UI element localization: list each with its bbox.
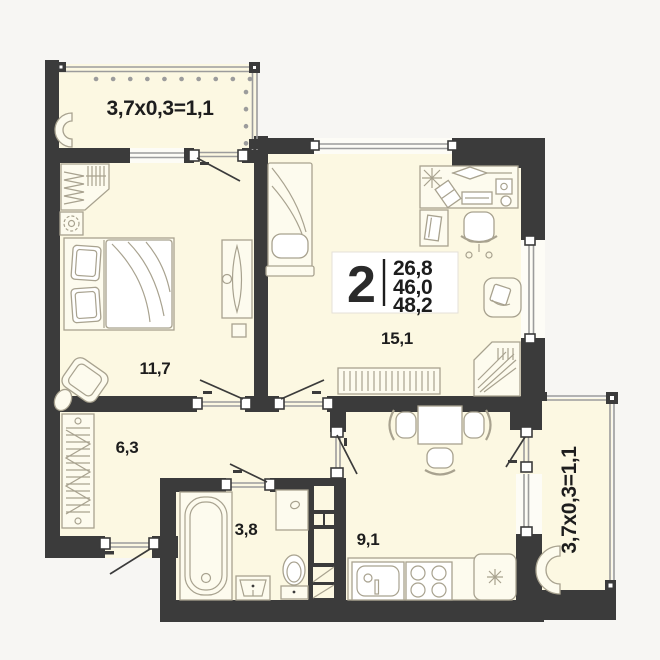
fridge [474, 554, 516, 600]
vanity-cabinet [236, 576, 270, 600]
double-bed [64, 238, 174, 330]
tv-stand [338, 368, 440, 394]
living-window-right [521, 236, 545, 343]
dining-table [418, 406, 462, 444]
info-area-line-3: 48,2 [393, 294, 432, 317]
hallway-corridor-floor [59, 410, 332, 480]
balcony-right-label: 3,7x0,3=1,1 [558, 446, 581, 554]
bedroom-window [130, 148, 184, 163]
desk-cup [496, 179, 512, 194]
kitchen-window [516, 472, 542, 537]
hall-wardrobe [62, 414, 94, 528]
pc-table [420, 210, 448, 246]
single-bed [266, 163, 314, 276]
hallway-area-label: 6,3 [116, 438, 139, 457]
kitchen-area-label: 9,1 [357, 530, 380, 549]
mouse [501, 196, 511, 206]
desk-plant [422, 168, 442, 188]
vent-shaft-cells [313, 486, 334, 598]
floor-plan-canvas: 2 26,8 46,0 48,2 3,7x0,3=1,1 3,7x0,3=1,1… [0, 0, 660, 660]
bedroom-stool [232, 324, 246, 337]
floor-plan: 2 26,8 46,0 48,2 3,7x0,3=1,1 3,7x0,3=1,1… [0, 0, 660, 660]
info-rooms-count: 2 [347, 256, 375, 314]
living-window-top [310, 138, 457, 154]
balcony-top-label: 3,7x0,3=1,1 [106, 97, 214, 120]
washbasin [276, 490, 308, 530]
kitchen-sink [352, 562, 404, 600]
bedroom-plant [60, 212, 83, 235]
stove [406, 562, 452, 600]
apartment-info-box: 2 26,8 46,0 48,2 [332, 252, 458, 317]
snowflake-icon [487, 569, 503, 585]
bedroom-area-label: 11,7 [140, 359, 171, 378]
entry-door [100, 536, 159, 574]
bathroom-area-label: 3,8 [235, 520, 258, 539]
mirror-stand [222, 240, 252, 318]
bathtub [180, 492, 232, 600]
living-armchair [484, 278, 521, 317]
living-room-area-label: 15,1 [381, 329, 413, 348]
desk [420, 166, 518, 208]
